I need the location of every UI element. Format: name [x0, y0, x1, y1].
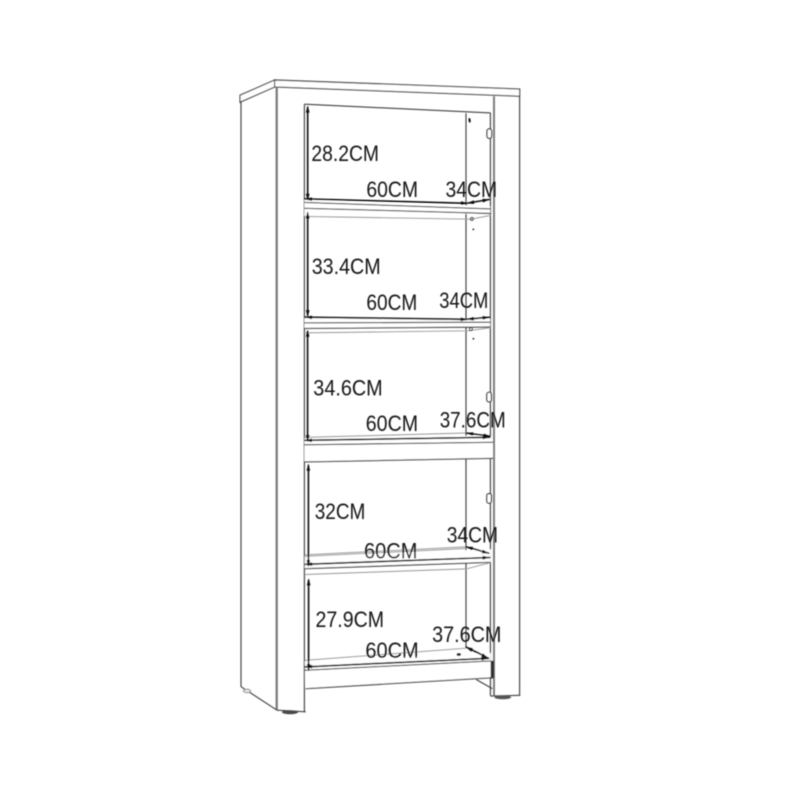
svg-text:34CM: 34CM: [447, 522, 498, 547]
svg-text:37.6CM: 37.6CM: [440, 407, 506, 432]
svg-text:60CM: 60CM: [365, 638, 418, 663]
svg-text:32CM: 32CM: [315, 499, 366, 524]
svg-text:60CM: 60CM: [366, 411, 418, 436]
svg-text:60CM: 60CM: [366, 177, 418, 202]
svg-text:37.6CM: 37.6CM: [432, 622, 501, 647]
svg-text:27.9CM: 27.9CM: [316, 607, 385, 632]
svg-text:34.6CM: 34.6CM: [313, 376, 382, 401]
svg-text:28.2CM: 28.2CM: [311, 141, 379, 166]
svg-text:60CM: 60CM: [366, 290, 417, 315]
svg-text:34CM: 34CM: [439, 288, 488, 313]
svg-text:60CM: 60CM: [364, 538, 417, 563]
svg-text:33.4CM: 33.4CM: [312, 254, 381, 279]
svg-text:34CM: 34CM: [446, 177, 498, 202]
